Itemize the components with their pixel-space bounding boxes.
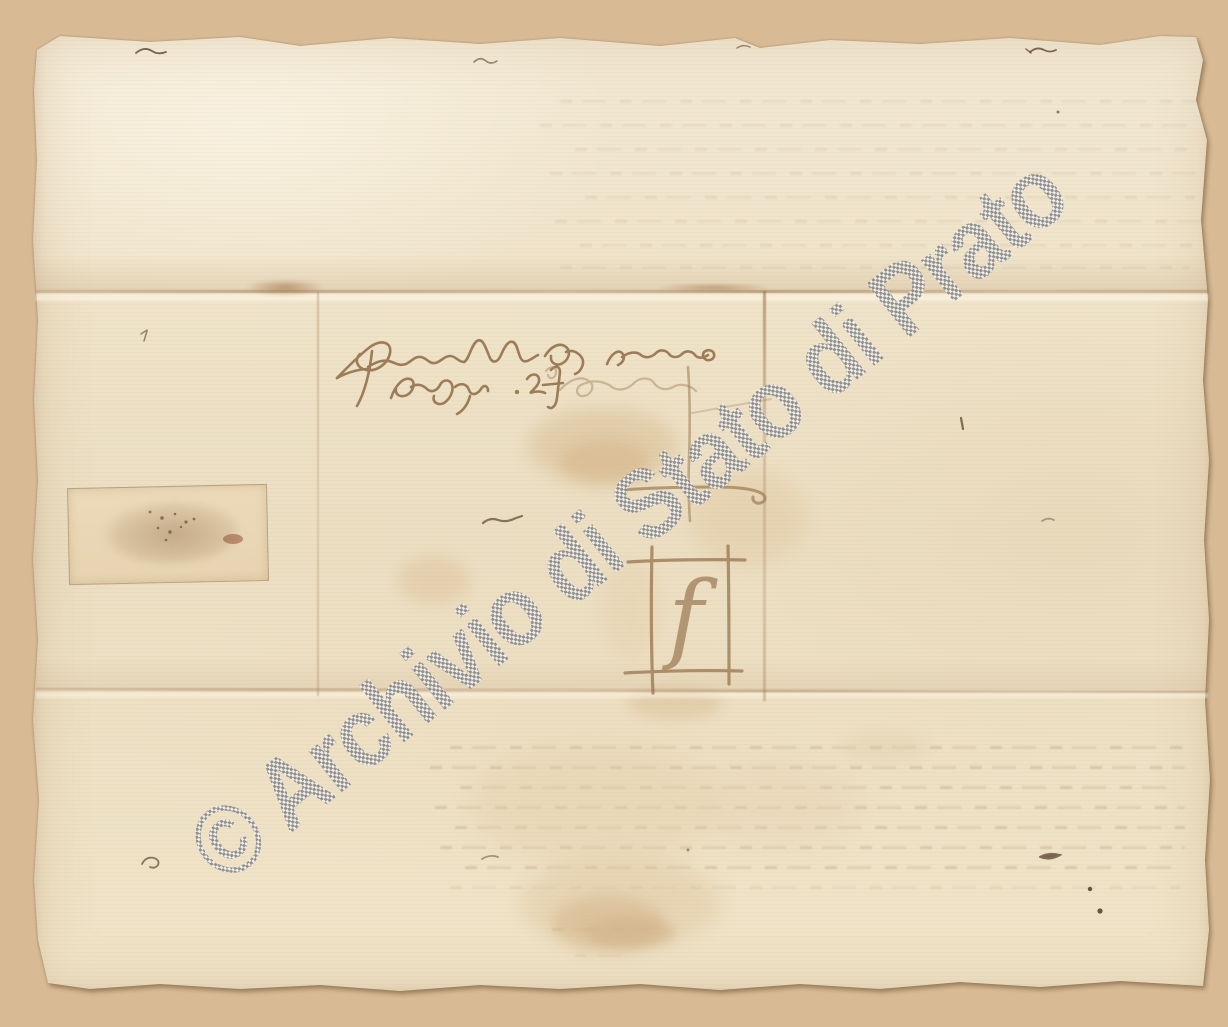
paper-stain bbox=[470, 745, 720, 865]
ghost-line bbox=[580, 244, 1195, 247]
scanned-document: f © Archivio di bbox=[0, 0, 1228, 1027]
crease-smudge bbox=[246, 279, 324, 296]
ghost-line bbox=[575, 148, 1195, 151]
paper-stain bbox=[586, 918, 676, 948]
ghost-line bbox=[575, 954, 635, 957]
fold-highlight bbox=[36, 294, 1208, 301]
paper-stain bbox=[690, 470, 805, 565]
paper-stain bbox=[700, 760, 860, 850]
seal-patch bbox=[67, 484, 269, 585]
fold-crease-vertical-left bbox=[317, 292, 319, 696]
fold-crease-horizontal-upper bbox=[36, 290, 1208, 293]
fold-shade bbox=[36, 254, 1208, 291]
paper-stain bbox=[840, 732, 930, 762]
ghost-line bbox=[550, 172, 1200, 175]
ghost-line bbox=[540, 124, 1200, 127]
ghost-line bbox=[585, 196, 1195, 199]
paper-stain bbox=[600, 560, 660, 660]
ghost-line bbox=[555, 220, 1200, 223]
fold-crease-vertical-right bbox=[763, 291, 766, 701]
ghost-line bbox=[560, 100, 1200, 103]
paper-stain bbox=[398, 556, 470, 604]
fold-shade bbox=[36, 658, 1208, 689]
crease-smudge bbox=[658, 283, 770, 292]
fold-highlight bbox=[36, 692, 1208, 698]
paper-stain bbox=[560, 440, 650, 485]
